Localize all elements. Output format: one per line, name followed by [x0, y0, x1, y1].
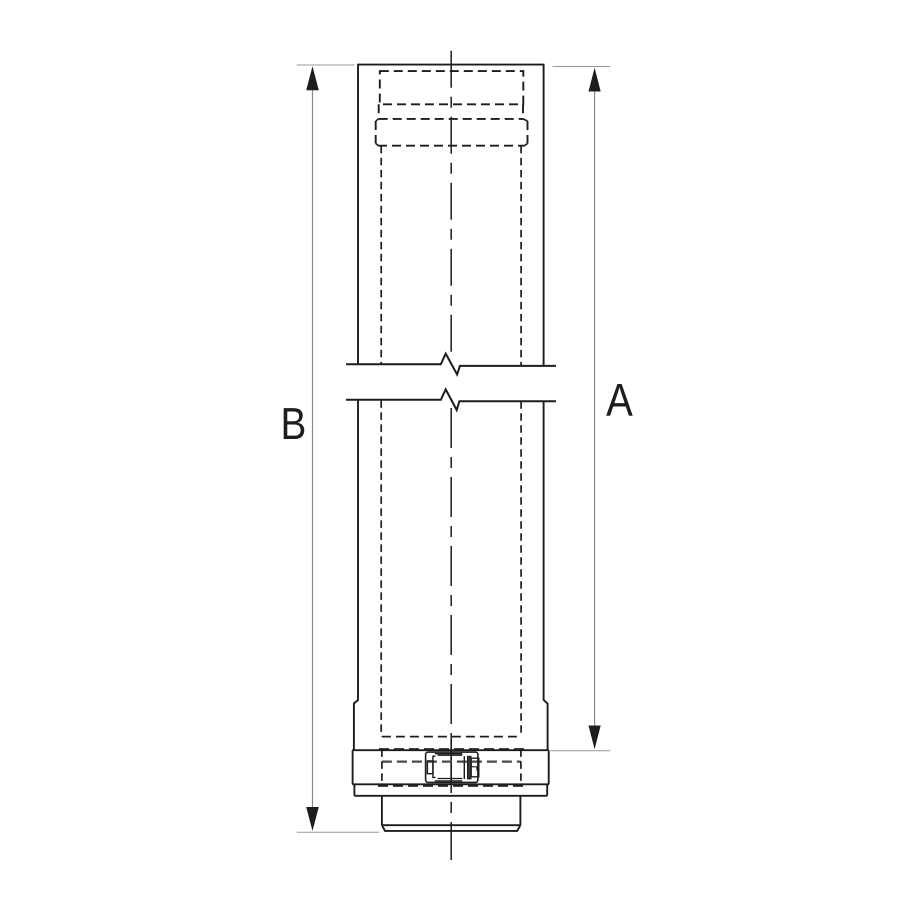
svg-text:A: A — [606, 375, 633, 426]
svg-text:B: B — [280, 398, 306, 448]
